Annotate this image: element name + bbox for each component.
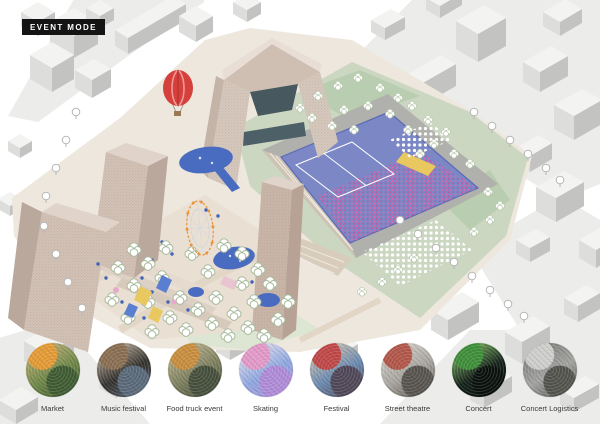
- event-photo-market: [26, 343, 80, 397]
- event-photo-concert: [452, 343, 506, 397]
- event-photo-festival: [310, 343, 364, 397]
- event-label: Concert: [465, 404, 491, 413]
- event-photo-skating: [239, 343, 293, 397]
- event-label: Skating: [253, 404, 278, 413]
- event-item-music-festival: Music festival: [88, 343, 159, 413]
- event-photo-music-festival: [97, 343, 151, 397]
- event-item-festival: Festival: [301, 343, 372, 413]
- event-photo-food-truck-event: [168, 343, 222, 397]
- event-photo-concert-logistics: [523, 343, 577, 397]
- event-strip: Market Music festival Food truck event S…: [0, 343, 600, 413]
- event-item-concert-logistics: Concert Logistics: [514, 343, 585, 413]
- event-item-skating: Skating: [230, 343, 301, 413]
- event-item-concert: Concert: [443, 343, 514, 413]
- event-label: Market: [41, 404, 64, 413]
- event-label: Street theatre: [385, 404, 430, 413]
- event-photo-street-theatre: [381, 343, 435, 397]
- illustration-canvas: EVENT MODE Market Music festival Food tr…: [0, 0, 600, 424]
- event-item-food-truck-event: Food truck event: [159, 343, 230, 413]
- balloon-basket: [174, 111, 181, 116]
- event-label: Concert Logistics: [521, 404, 579, 413]
- mode-badge-label: EVENT MODE: [30, 23, 97, 32]
- city-block: [233, 0, 261, 22]
- mode-badge: EVENT MODE: [22, 19, 105, 35]
- event-label: Food truck event: [167, 404, 223, 413]
- event-item-street-theatre: Street theatre: [372, 343, 443, 413]
- event-label: Festival: [324, 404, 350, 413]
- city-block: [8, 134, 32, 158]
- event-item-market: Market: [17, 343, 88, 413]
- event-label: Music festival: [101, 404, 146, 413]
